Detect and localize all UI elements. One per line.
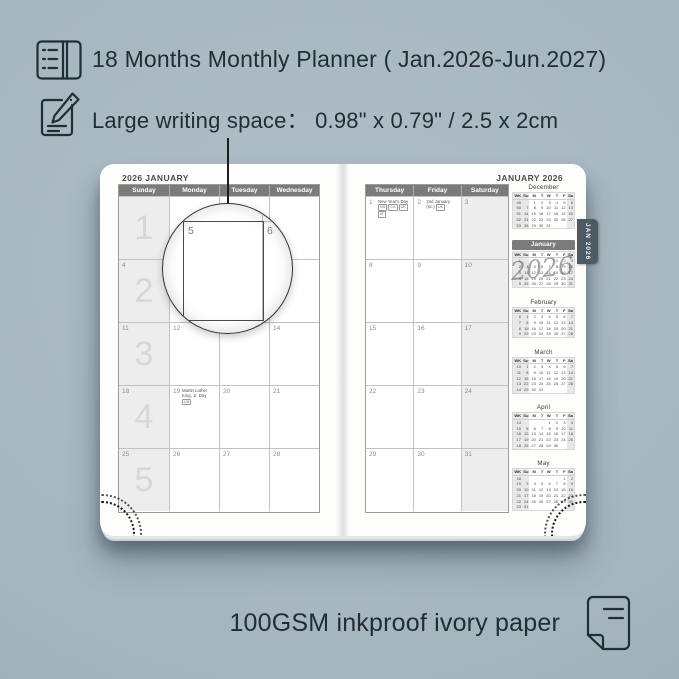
mini-date: 25 [544, 331, 551, 337]
mini-day-header: Sa [567, 193, 574, 200]
mini-day-header: M [529, 469, 536, 476]
mini-date: 27 [529, 443, 536, 449]
date-number: 2 [417, 199, 421, 206]
mini-date: 28 [567, 331, 574, 337]
magnified-date-6: 6 [267, 225, 273, 237]
week-number: 3 [119, 323, 169, 385]
mini-day-header: F [559, 193, 566, 200]
mini-date: 29 [544, 443, 551, 449]
magnified-date-5: 5 [188, 225, 194, 237]
mini-day-header: Su [522, 358, 529, 365]
mini-date: 26 [552, 331, 559, 337]
mini-date: 26 [522, 443, 529, 449]
day-cell: 9 [413, 259, 460, 322]
mini-day-header: T [552, 358, 559, 365]
day-cell: 20 [219, 385, 269, 448]
day-cell: 22nd January (sc.) UK [413, 196, 460, 259]
mini-day-header: T [552, 413, 559, 420]
day-cell: 8 [366, 259, 413, 322]
day-cell: 21 [269, 385, 319, 448]
day-cell: 24 [461, 385, 508, 448]
mini-week-number: 14 [513, 387, 522, 393]
date-number: 25 [122, 451, 129, 458]
mini-month-title: December [512, 184, 575, 191]
mini-date: 26 [529, 281, 536, 287]
date-number: 27 [223, 451, 230, 458]
mini-date: 22 [522, 331, 529, 337]
country-badge: US [378, 204, 387, 211]
country-badge: US [182, 399, 191, 406]
mini-date: 30 [552, 443, 559, 449]
date-number: 24 [465, 388, 472, 395]
mini-day-header: Sa [567, 308, 574, 315]
country-badge: UK [436, 204, 445, 211]
date-number: 3 [465, 199, 469, 206]
mini-day-header: W [544, 358, 551, 365]
date-number: 30 [417, 451, 424, 458]
mini-calendar-sidebar: DecemberWKSuMTWTFSa491234565078910111213… [512, 184, 575, 511]
mini-day-header: M [529, 193, 536, 200]
day-cell: 31 [461, 448, 508, 511]
day-cell: 418 [119, 385, 169, 448]
country-badge: CA [388, 204, 397, 211]
footer-row-paper-quality: 100GSM inkproof ivory paper [0, 588, 679, 658]
mini-date [559, 504, 566, 510]
day-cell: 525 [119, 448, 169, 511]
mini-date [544, 504, 551, 510]
mini-day-header: Sa [567, 358, 574, 365]
mini-date [559, 387, 566, 393]
date-number: 22 [369, 388, 376, 395]
mini-day-header: Sa [567, 469, 574, 476]
mini-day-header: T [552, 193, 559, 200]
mini-date [567, 443, 574, 449]
mini-day-header: WK [513, 469, 522, 476]
mini-date: 28 [537, 443, 544, 449]
date-number: 21 [273, 388, 280, 395]
week-row: 8910 [366, 259, 508, 322]
mini-day-header: W [544, 469, 551, 476]
mini-day-header: T [537, 413, 544, 420]
week-number: 1 [119, 197, 169, 259]
left-page-title: 2026 JANUARY [122, 173, 189, 183]
date-number: 4 [122, 262, 126, 269]
date-number: 8 [369, 262, 373, 269]
week-row: 525262728 [119, 448, 319, 511]
holiday-label: Martin Luther King, Jr. Day US [182, 388, 217, 405]
date-number: 26 [173, 451, 180, 458]
mini-date [567, 504, 574, 510]
mini-date [544, 387, 551, 393]
mini-day-header: T [552, 469, 559, 476]
mini-day-header: F [559, 252, 566, 259]
mini-week-number: 9 [513, 331, 522, 337]
mini-day-header: T [537, 252, 544, 259]
weekday-header: Sunday [119, 185, 169, 196]
mini-date: 30 [559, 281, 566, 287]
mini-month-grid: WKSuMTWTFSa49123456507891011121351141516… [512, 192, 575, 229]
magnifier-circle: 5 6 [162, 203, 293, 334]
day-cell: 14 [269, 322, 319, 385]
mini-day-header: T [552, 308, 559, 315]
mini-day-header: WK [513, 358, 522, 365]
mini-day-header: T [537, 469, 544, 476]
mini-month-grid: WKSuMTWTFSa10123456711891011121314121516… [512, 357, 575, 394]
mini-day-header: M [529, 413, 536, 420]
date-number: 16 [417, 325, 424, 332]
mini-day-header: T [537, 358, 544, 365]
day-cell: 23 [413, 385, 460, 448]
date-number: 23 [417, 388, 424, 395]
mini-date: 27 [559, 331, 566, 337]
mini-month: FebruaryWKSuMTWTFSa612345677891011121314… [512, 299, 575, 339]
weekday-header-row: ThursdayFridaySaturday [366, 185, 508, 196]
weekday-header: Wednesday [269, 185, 319, 196]
feature-text-planner-range: 18 Months Monthly Planner ( Jan.2026-Jun… [92, 46, 606, 73]
mini-date: 31 [537, 387, 544, 393]
date-number: 9 [417, 262, 421, 269]
mini-day-header: F [559, 308, 566, 315]
day-cell: 30 [413, 448, 460, 511]
mini-date: 28 [544, 281, 551, 287]
weekday-header: Saturday [461, 185, 508, 196]
mini-day-header: WK [513, 193, 522, 200]
date-number: 10 [465, 262, 472, 269]
date-number: 31 [465, 451, 472, 458]
mini-day-header: WK [513, 308, 522, 315]
mini-month: DecemberWKSuMTWTFSa491234565078910111213… [512, 184, 575, 229]
day-cell: 1New Year's Day USCAUKIE [366, 196, 413, 259]
day-cell: 27 [219, 448, 269, 511]
mini-day-header: F [559, 358, 566, 365]
mini-date [559, 443, 566, 449]
product-image: 18 Months Monthly Planner ( Jan.2026-Jun… [0, 0, 679, 679]
day-cell: 311 [119, 322, 169, 385]
mini-date: 29 [522, 387, 529, 393]
country-badge: IE [378, 211, 386, 218]
day-cell: 16 [413, 322, 460, 385]
mini-month-title: April [512, 404, 575, 411]
mini-date: 30 [529, 387, 536, 393]
week-row: 293031 [366, 448, 508, 511]
mini-date [567, 387, 574, 393]
weekday-header-row: SundayMondayTuesdayWednesday [119, 185, 319, 196]
mini-date [529, 504, 536, 510]
mini-date: 31 [544, 223, 551, 229]
day-cell: 26 [169, 448, 219, 511]
date-number: 12 [173, 325, 180, 332]
day-cell: 15 [366, 322, 413, 385]
day-cell: 29 [366, 448, 413, 511]
mini-date [537, 504, 544, 510]
day-cell: 1 [119, 196, 169, 259]
mini-date [567, 223, 574, 229]
mini-day-header: W [544, 193, 551, 200]
mini-date: 29 [552, 281, 559, 287]
paper-sheet-icon [580, 594, 632, 652]
feature-text-writing-space: Large writing space： 0.98" x 0.79" / 2.5… [92, 103, 558, 135]
week-row: 151617 [366, 322, 508, 385]
mini-date: 24 [537, 331, 544, 337]
date-number: 17 [465, 325, 472, 332]
mini-month-title: January [512, 240, 575, 250]
right-page-title: JANUARY 2026 [413, 173, 563, 183]
mini-day-header: Sa [567, 413, 574, 420]
date-number: 28 [273, 451, 280, 458]
country-badge: UK [399, 204, 408, 211]
mini-month: JanuaryWKSuMTWTFSa1123245678910311121314… [512, 240, 575, 288]
mini-date [552, 387, 559, 393]
date-number: 20 [223, 388, 230, 395]
mini-day-header: W [544, 413, 551, 420]
mini-date: 31 [567, 281, 574, 287]
week-row: 1New Year's Day USCAUKIE22nd January (sc… [366, 196, 508, 259]
right-month-grid: ThursdayFridaySaturday1New Year's Day US… [365, 184, 509, 513]
mini-date: 25 [522, 281, 529, 287]
holiday-label: 2nd January (sc.) UK [426, 199, 458, 211]
footer-text-paper-quality: 100GSM inkproof ivory paper [229, 609, 560, 638]
date-number: 1 [369, 199, 373, 206]
day-cell: 17 [461, 322, 508, 385]
mini-day-header: Su [522, 308, 529, 315]
day-cell: 28 [269, 448, 319, 511]
mini-day-header: T [537, 308, 544, 315]
mini-day-header: T [537, 193, 544, 200]
mini-day-header: Su [522, 413, 529, 420]
mini-date [559, 223, 566, 229]
date-number: 19 [173, 388, 180, 395]
week-row: 222324 [366, 385, 508, 448]
week-number: 5 [119, 449, 169, 511]
weekday-header: Friday [413, 185, 460, 196]
mini-week-number: 18 [513, 443, 522, 449]
mini-day-header: Sa [567, 252, 574, 259]
writing-pencil-icon [40, 92, 80, 138]
day-cell: 10 [461, 259, 508, 322]
mini-date [552, 223, 559, 229]
week-row: 41819Martin Luther King, Jr. Day US2021 [119, 385, 319, 448]
mini-date: 31 [522, 504, 529, 510]
mini-day-header: F [559, 413, 566, 420]
mini-date: 30 [537, 223, 544, 229]
mini-month: MarchWKSuMTWTFSa101234567118910111213141… [512, 349, 575, 394]
writing-space-outline [183, 221, 264, 321]
mini-day-header: W [544, 252, 551, 259]
mini-day-header: M [529, 358, 536, 365]
date-number: 18 [122, 388, 129, 395]
mini-month-grid: WKSuMTWTFSa18121934567892010111213141516… [512, 468, 575, 511]
mini-month-grid: WKSuMTWTFSa14123415567891011161213141516… [512, 412, 575, 449]
week-number: 4 [119, 386, 169, 448]
mini-date: 29 [529, 223, 536, 229]
date-number: 11 [122, 325, 129, 332]
mini-day-header: Su [522, 252, 529, 259]
date-number: 15 [369, 325, 376, 332]
day-cell: 3 [461, 196, 508, 259]
month-index-tab: JAN 2026 [577, 219, 598, 264]
mini-day-header: W [544, 308, 551, 315]
mini-month-grid: WKSuMTWTFSa11232456789103111213141516174… [512, 251, 575, 288]
mini-date [552, 504, 559, 510]
mini-day-header: WK [513, 252, 522, 259]
callout-pointer-line [227, 138, 229, 205]
mini-month-title: February [512, 299, 575, 306]
mini-date: 27 [537, 281, 544, 287]
mini-month: AprilWKSuMTWTFSa141234155678910111612131… [512, 404, 575, 449]
weekday-header: Thursday [366, 185, 413, 196]
mini-month: MayWKSuMTWTFSa18121934567892010111213141… [512, 460, 575, 511]
mini-day-header: T [552, 252, 559, 259]
mini-day-header: M [529, 308, 536, 315]
day-cell: 19Martin Luther King, Jr. Day US [169, 385, 219, 448]
mini-week-number: 5 [513, 281, 522, 287]
holiday-label: New Year's Day USCAUKIE [378, 199, 411, 218]
day-cell: 22 [366, 385, 413, 448]
planner-book-spread: 2026 JANUARY SundayMondayTuesdayWednesda… [100, 164, 586, 536]
mini-week-number: 23 [513, 504, 522, 510]
date-number: 29 [369, 451, 376, 458]
mini-day-header: Su [522, 193, 529, 200]
mini-day-header: M [529, 252, 536, 259]
book-spine [336, 164, 350, 536]
mini-month-grid: WKSuMTWTFSa61234567789101112131481516171… [512, 307, 575, 339]
mini-week-number: 53 [513, 223, 522, 229]
mini-day-header: F [559, 469, 566, 476]
mini-day-header: WK [513, 413, 522, 420]
mini-date: 28 [522, 223, 529, 229]
mini-month-title: March [512, 349, 575, 356]
weekday-header: Monday [169, 185, 219, 196]
mini-day-header: Su [522, 469, 529, 476]
mini-month-title: May [512, 460, 575, 467]
mini-date: 23 [529, 331, 536, 337]
open-planner-icon [36, 40, 83, 80]
month-tab-label: JAN 2026 [584, 223, 591, 260]
date-number: 14 [273, 325, 280, 332]
